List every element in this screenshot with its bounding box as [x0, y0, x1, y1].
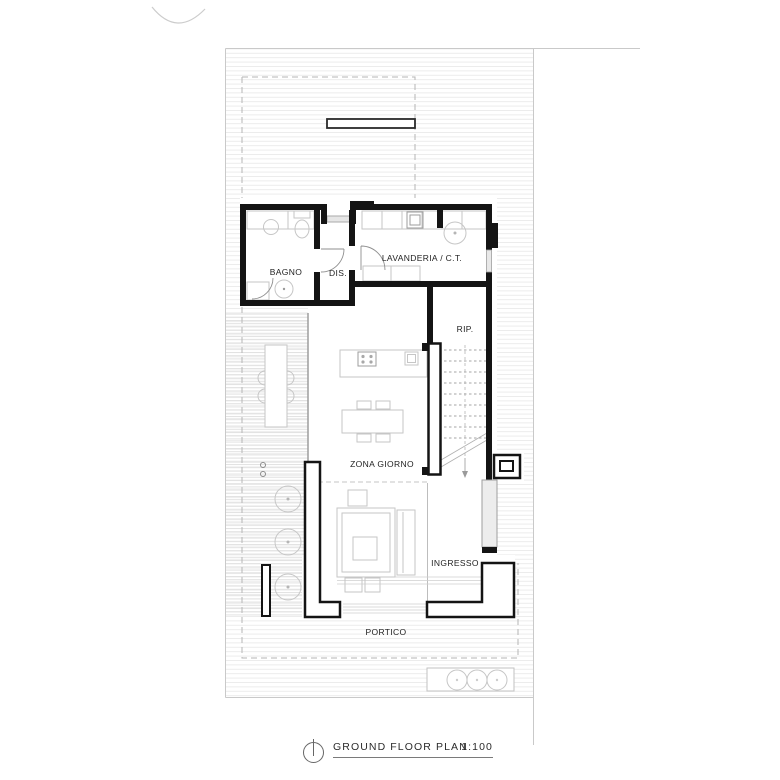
- chaise-lounge: [397, 510, 415, 575]
- room-label-bagno: BAGNO: [270, 267, 302, 277]
- floor-plan-sheet: BAGNO DIS. LAVANDERIA / C.T. RIP. ZONA G…: [0, 0, 780, 780]
- room-label-ingresso: INGRESSO: [431, 558, 479, 568]
- pilaster: [492, 223, 498, 248]
- deck-screen-wall: [262, 565, 270, 616]
- stair-wall: [429, 344, 441, 475]
- drawing-scale: 1:100: [458, 741, 493, 753]
- outdoor-table: [265, 345, 287, 427]
- drawing-title: GROUND FLOOR PLAN: [333, 741, 468, 753]
- room-label-portico: PORTICO: [365, 627, 406, 637]
- room-label-rip: RIP.: [457, 324, 474, 334]
- garden-wall: [327, 119, 415, 128]
- sofa: [337, 508, 395, 577]
- room-label-dis: DIS.: [329, 268, 347, 278]
- window: [487, 250, 492, 272]
- entry-glazing: [482, 480, 497, 547]
- dining-table: [342, 410, 403, 433]
- room-label-lavanderia: LAVANDERIA / C.T.: [382, 253, 462, 263]
- floor-plan-drawing: [0, 0, 780, 780]
- entry-door-threshold: [327, 216, 350, 222]
- driveway-arc: [152, 7, 205, 23]
- title-underline: [333, 757, 493, 758]
- room-label-zona-giorno: ZONA GIORNO: [350, 459, 414, 469]
- north-arrow-needle: [313, 739, 314, 756]
- column-detail: [494, 455, 520, 478]
